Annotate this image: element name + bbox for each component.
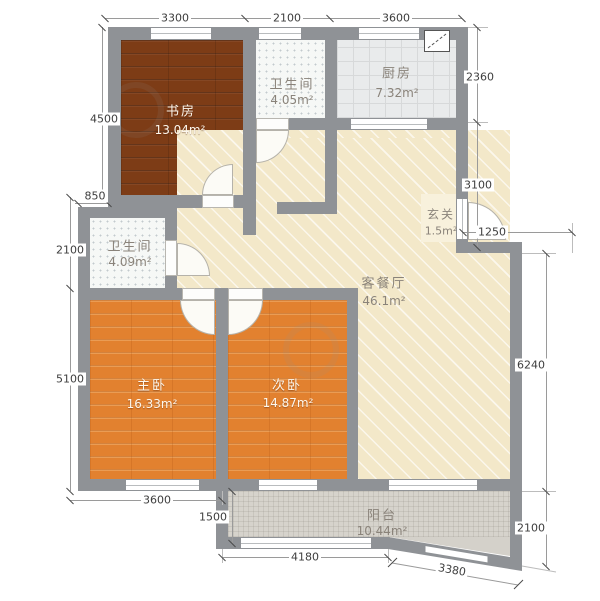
dim-left-1: 4500 xyxy=(88,113,120,126)
ext-line xyxy=(522,491,556,492)
dim-left-line xyxy=(70,197,71,491)
balcony-area: 10.44m² xyxy=(357,524,408,538)
entry-area: 1.5m² xyxy=(425,225,458,238)
master-window xyxy=(125,479,200,491)
study-door-opening xyxy=(202,195,234,208)
balcony-label: 阳台 xyxy=(367,505,397,524)
dim-left-4: 5100 xyxy=(54,373,86,386)
dim-3380-tick-b xyxy=(514,580,523,589)
bath-left-door-opening xyxy=(165,240,177,276)
dim-bottom-1: 3600 xyxy=(141,494,173,507)
bath-left-label: 卫生间 xyxy=(107,236,152,255)
dim-bottom-2: 1500 xyxy=(197,511,229,524)
dim-2360-line xyxy=(477,27,478,247)
dim-bottom-3: 4180 xyxy=(289,551,321,564)
watermark xyxy=(283,322,339,378)
dim-left-2: 850 xyxy=(83,190,108,203)
kitchen-area: 7.32m² xyxy=(375,86,418,100)
second-window xyxy=(258,479,318,491)
entry-label: 玄关 xyxy=(427,206,455,223)
living-label: 客餐厅 xyxy=(361,273,406,292)
dim-1500-line xyxy=(232,491,233,543)
bath-left-area: 4.09m² xyxy=(108,255,151,269)
bath-top-label: 卫生间 xyxy=(269,74,314,93)
master-area: 16.33m² xyxy=(127,397,178,411)
dim-6240-line xyxy=(546,253,547,566)
dim-right-1: 2360 xyxy=(464,71,496,84)
dim-right-5: 2100 xyxy=(515,522,547,535)
balcony-window xyxy=(240,537,372,549)
balcony-angled-window xyxy=(425,546,488,564)
dim-bottom-4: 3380 xyxy=(435,561,469,579)
ext-line xyxy=(572,223,573,253)
dim-top-2: 2100 xyxy=(271,12,303,25)
kitchen-slider xyxy=(350,118,428,130)
master-label: 主卧 xyxy=(137,375,167,394)
dim-right-2: 3100 xyxy=(462,179,494,192)
second-label: 次卧 xyxy=(272,375,302,394)
kitchen-window xyxy=(358,27,420,40)
dim-850-line xyxy=(75,203,110,204)
dim-top-3: 3600 xyxy=(380,12,412,25)
wall-second-right xyxy=(347,288,358,491)
second-door-opening xyxy=(228,288,263,300)
dim-right-3: 1250 xyxy=(476,226,508,239)
dim-4500-line xyxy=(102,27,103,195)
dim-left-3: 2100 xyxy=(54,244,86,257)
flue-icon xyxy=(424,30,450,52)
dim-right-4: 6240 xyxy=(515,359,547,372)
master-door-opening xyxy=(182,288,215,300)
ext-line xyxy=(522,253,556,254)
bath-top-window xyxy=(258,27,302,40)
wall-bath-left-top xyxy=(78,207,177,218)
living-window xyxy=(388,479,478,491)
second-area: 14.87m² xyxy=(263,396,314,410)
ext-balcony-right xyxy=(522,566,556,572)
balcony-floor-angled xyxy=(388,537,510,556)
wall-bed-divider xyxy=(216,288,228,491)
wall-dining-stub xyxy=(277,202,337,214)
living-area: 46.1m² xyxy=(362,294,405,308)
bath-top-area: 4.05m² xyxy=(270,93,313,107)
dim-top-1: 3300 xyxy=(159,12,191,25)
floor-plan: 书房 13.04m² 卫生间 4.05m² 厨房 7.32m² 玄关 1.5m²… xyxy=(0,0,600,601)
kitchen-label: 厨房 xyxy=(382,63,412,82)
wall-right-lower xyxy=(510,242,522,564)
study-label: 书房 xyxy=(166,101,196,120)
entry-door-leaf xyxy=(456,198,468,240)
bath-top-door-opening xyxy=(256,118,289,130)
study-area: 13.04m² xyxy=(155,123,206,137)
study-window xyxy=(150,27,212,40)
